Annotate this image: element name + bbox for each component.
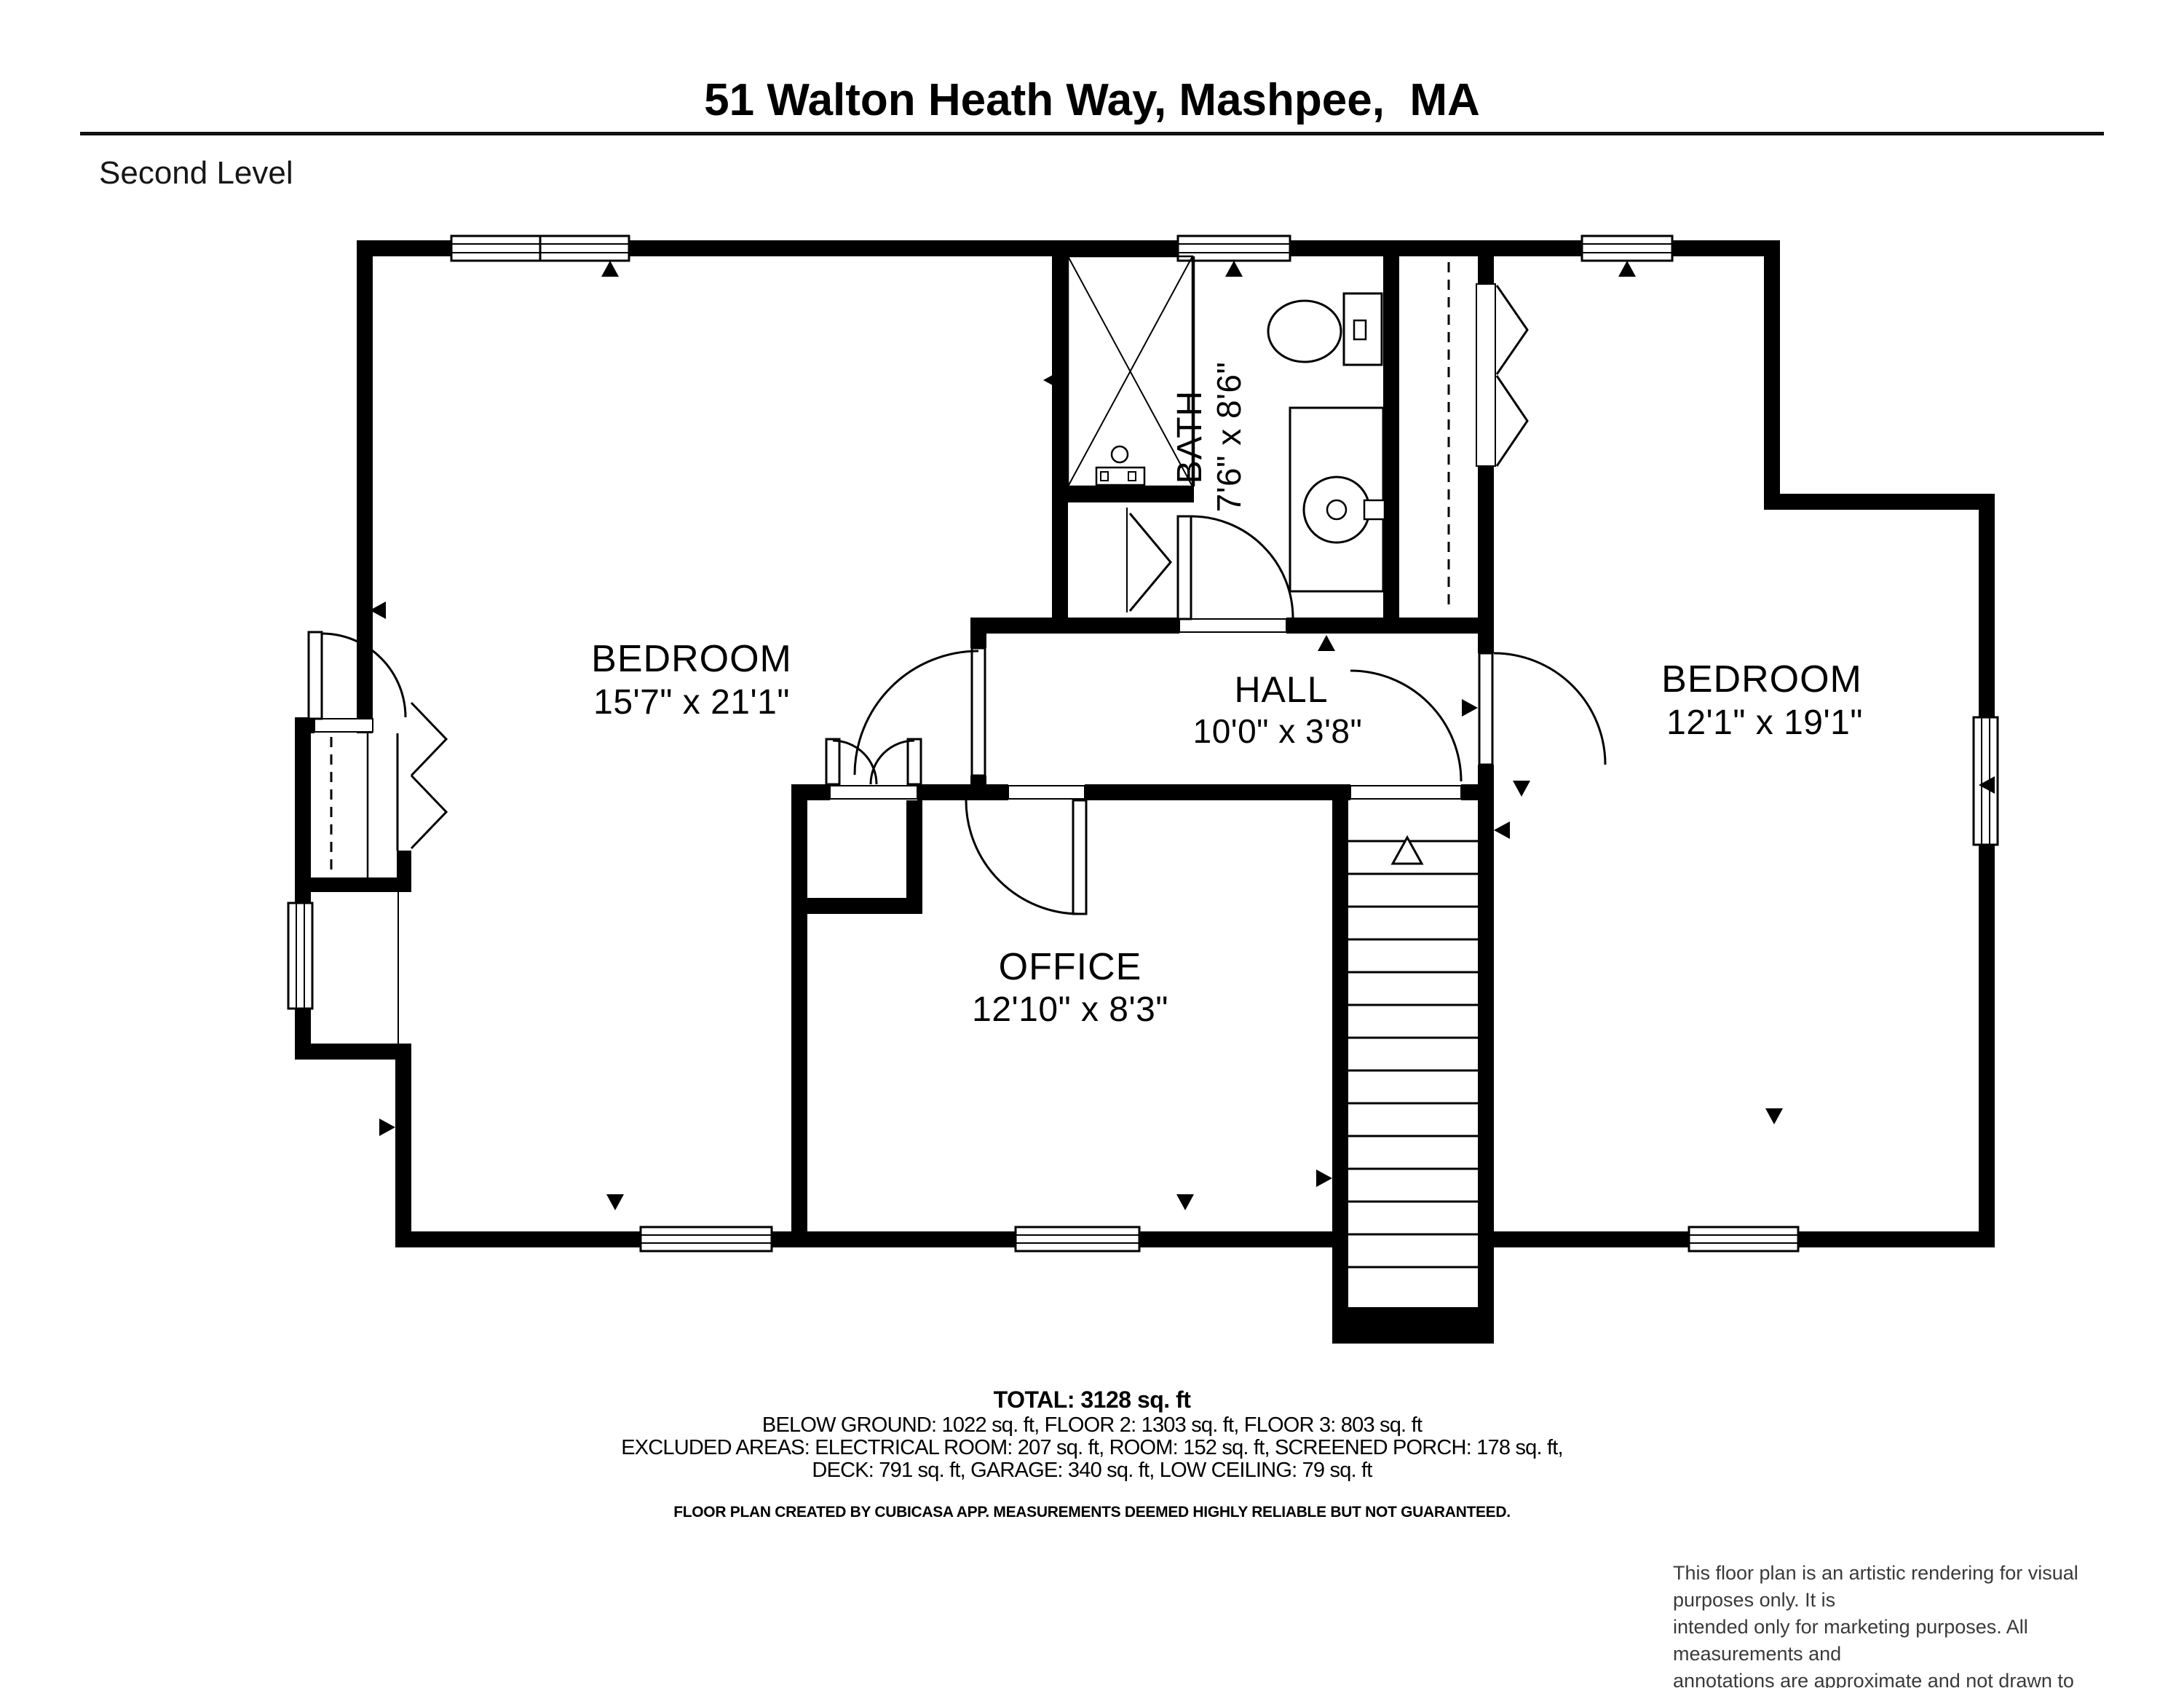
door-office — [966, 786, 1086, 914]
window-office-bottom — [1016, 1227, 1139, 1251]
wall — [1332, 800, 1348, 1344]
disclaimer: This floor plan is an artistic rendering… — [1673, 1560, 2124, 1688]
room-label-bedroom-left: BEDROOM — [591, 638, 792, 680]
room-dims-office: 12'10" x 8'3" — [972, 990, 1168, 1029]
marker-icon — [1043, 371, 1059, 389]
marker-icon — [1765, 1108, 1783, 1124]
floor-plan-page: 51 Walton Heath Way, Mashpee, MA Second … — [0, 0, 2184, 1688]
windows — [288, 236, 1998, 1251]
staircase — [1348, 837, 1478, 1267]
room-label-bedroom-right: BEDROOM — [1661, 658, 1862, 701]
summary-credit: FLOOR PLAN CREATED BY CUBICASA APP. MEAS… — [0, 1504, 2184, 1521]
door-bedroom-right — [1479, 653, 1605, 765]
wall — [1764, 494, 1995, 510]
marker-icon — [1316, 1170, 1332, 1187]
window-bedroom-left-top — [451, 236, 629, 261]
wall — [791, 898, 922, 914]
wall — [295, 717, 311, 892]
room-labels: BEDROOM 15'7" x 21'1" BATH 7'6" x 8'6" H… — [591, 362, 1863, 1029]
wall — [1461, 784, 1478, 800]
marker-icon — [1176, 1194, 1194, 1210]
wall — [970, 618, 986, 648]
marker-icon — [1318, 635, 1335, 651]
wall — [395, 1231, 1348, 1247]
summary-excluded-2: DECK: 791 sq. ft, GARAGE: 340 sq. ft, LO… — [0, 1459, 2184, 1482]
door-stairs — [1350, 671, 1461, 799]
door-bath — [1178, 516, 1293, 632]
wall — [791, 784, 807, 1247]
wall — [295, 1044, 411, 1060]
summary-excluded: EXCLUDED AREAS: ELECTRICAL ROOM: 207 sq.… — [0, 1437, 2184, 1459]
wall — [1764, 240, 1780, 510]
window-bedroom-left-bottom — [641, 1227, 772, 1251]
wall — [395, 1060, 411, 1247]
marker-icon — [1513, 781, 1530, 797]
wall — [397, 851, 411, 880]
room-dims-bedroom-right: 12'1" x 19'1" — [1666, 703, 1863, 742]
wall — [1478, 466, 1494, 634]
wall — [1052, 240, 1068, 634]
wall — [906, 800, 922, 898]
bifold-bath-closet — [1130, 513, 1171, 611]
marker-icon — [1225, 261, 1243, 277]
summary-total: TOTAL: 3128 sq. ft — [0, 1385, 2184, 1414]
disclaimer-line: annotations are approximate and not draw… — [1673, 1668, 2124, 1688]
wall — [1478, 765, 1494, 1344]
disclaimer-line: This floor plan is an artistic rendering… — [1673, 1560, 2124, 1614]
shower-faucet — [1096, 446, 1144, 485]
wall — [1068, 486, 1194, 502]
room-label-hall: HALL — [1234, 669, 1328, 710]
wall — [1979, 494, 1995, 1247]
room-label-office: OFFICE — [999, 946, 1142, 988]
room-dims-bath: 7'6" x 8'6" — [1210, 362, 1248, 513]
summary-floors: BELOW GROUND: 1022 sq. ft, FLOOR 2: 1303… — [0, 1414, 2184, 1437]
marker-icon — [606, 1194, 624, 1210]
wall — [295, 877, 411, 892]
room-label-bath: BATH — [1171, 390, 1209, 484]
marker-icon — [601, 261, 619, 277]
door-center-closet — [826, 739, 921, 799]
vanity-sink — [1290, 408, 1385, 591]
room-dims-bedroom-left: 15'7" x 21'1" — [593, 683, 790, 722]
window-left-nook — [288, 903, 312, 1009]
marker-icon — [1618, 261, 1636, 277]
area-summary: TOTAL: 3128 sq. ft BELOW GROUND: 1022 sq… — [0, 1385, 2184, 1521]
bifold-left-closet — [411, 703, 446, 848]
walls — [295, 240, 1995, 1344]
wall — [1332, 1307, 1494, 1344]
wall — [917, 784, 1008, 800]
wall — [1383, 240, 1399, 634]
wall — [357, 256, 373, 733]
toilet — [1268, 293, 1382, 365]
wall — [1478, 634, 1494, 653]
wall — [1085, 784, 1350, 800]
doors — [309, 284, 1605, 914]
disclaimer-line: intended only for marketing purposes. Al… — [1673, 1614, 2124, 1668]
window-bedroom-right-bottom — [1689, 1227, 1798, 1251]
window-bedroom-right-top — [1582, 236, 1672, 261]
wall — [1478, 256, 1494, 284]
bifold-right-closet — [1476, 284, 1527, 466]
marker-icon — [379, 1119, 395, 1136]
wall — [970, 618, 1179, 634]
interior-lines — [331, 256, 1449, 1044]
marker-icon — [1494, 821, 1510, 839]
marker-icon — [1462, 699, 1478, 717]
room-dims-hall: 10'0" x 3'8" — [1193, 712, 1363, 750]
